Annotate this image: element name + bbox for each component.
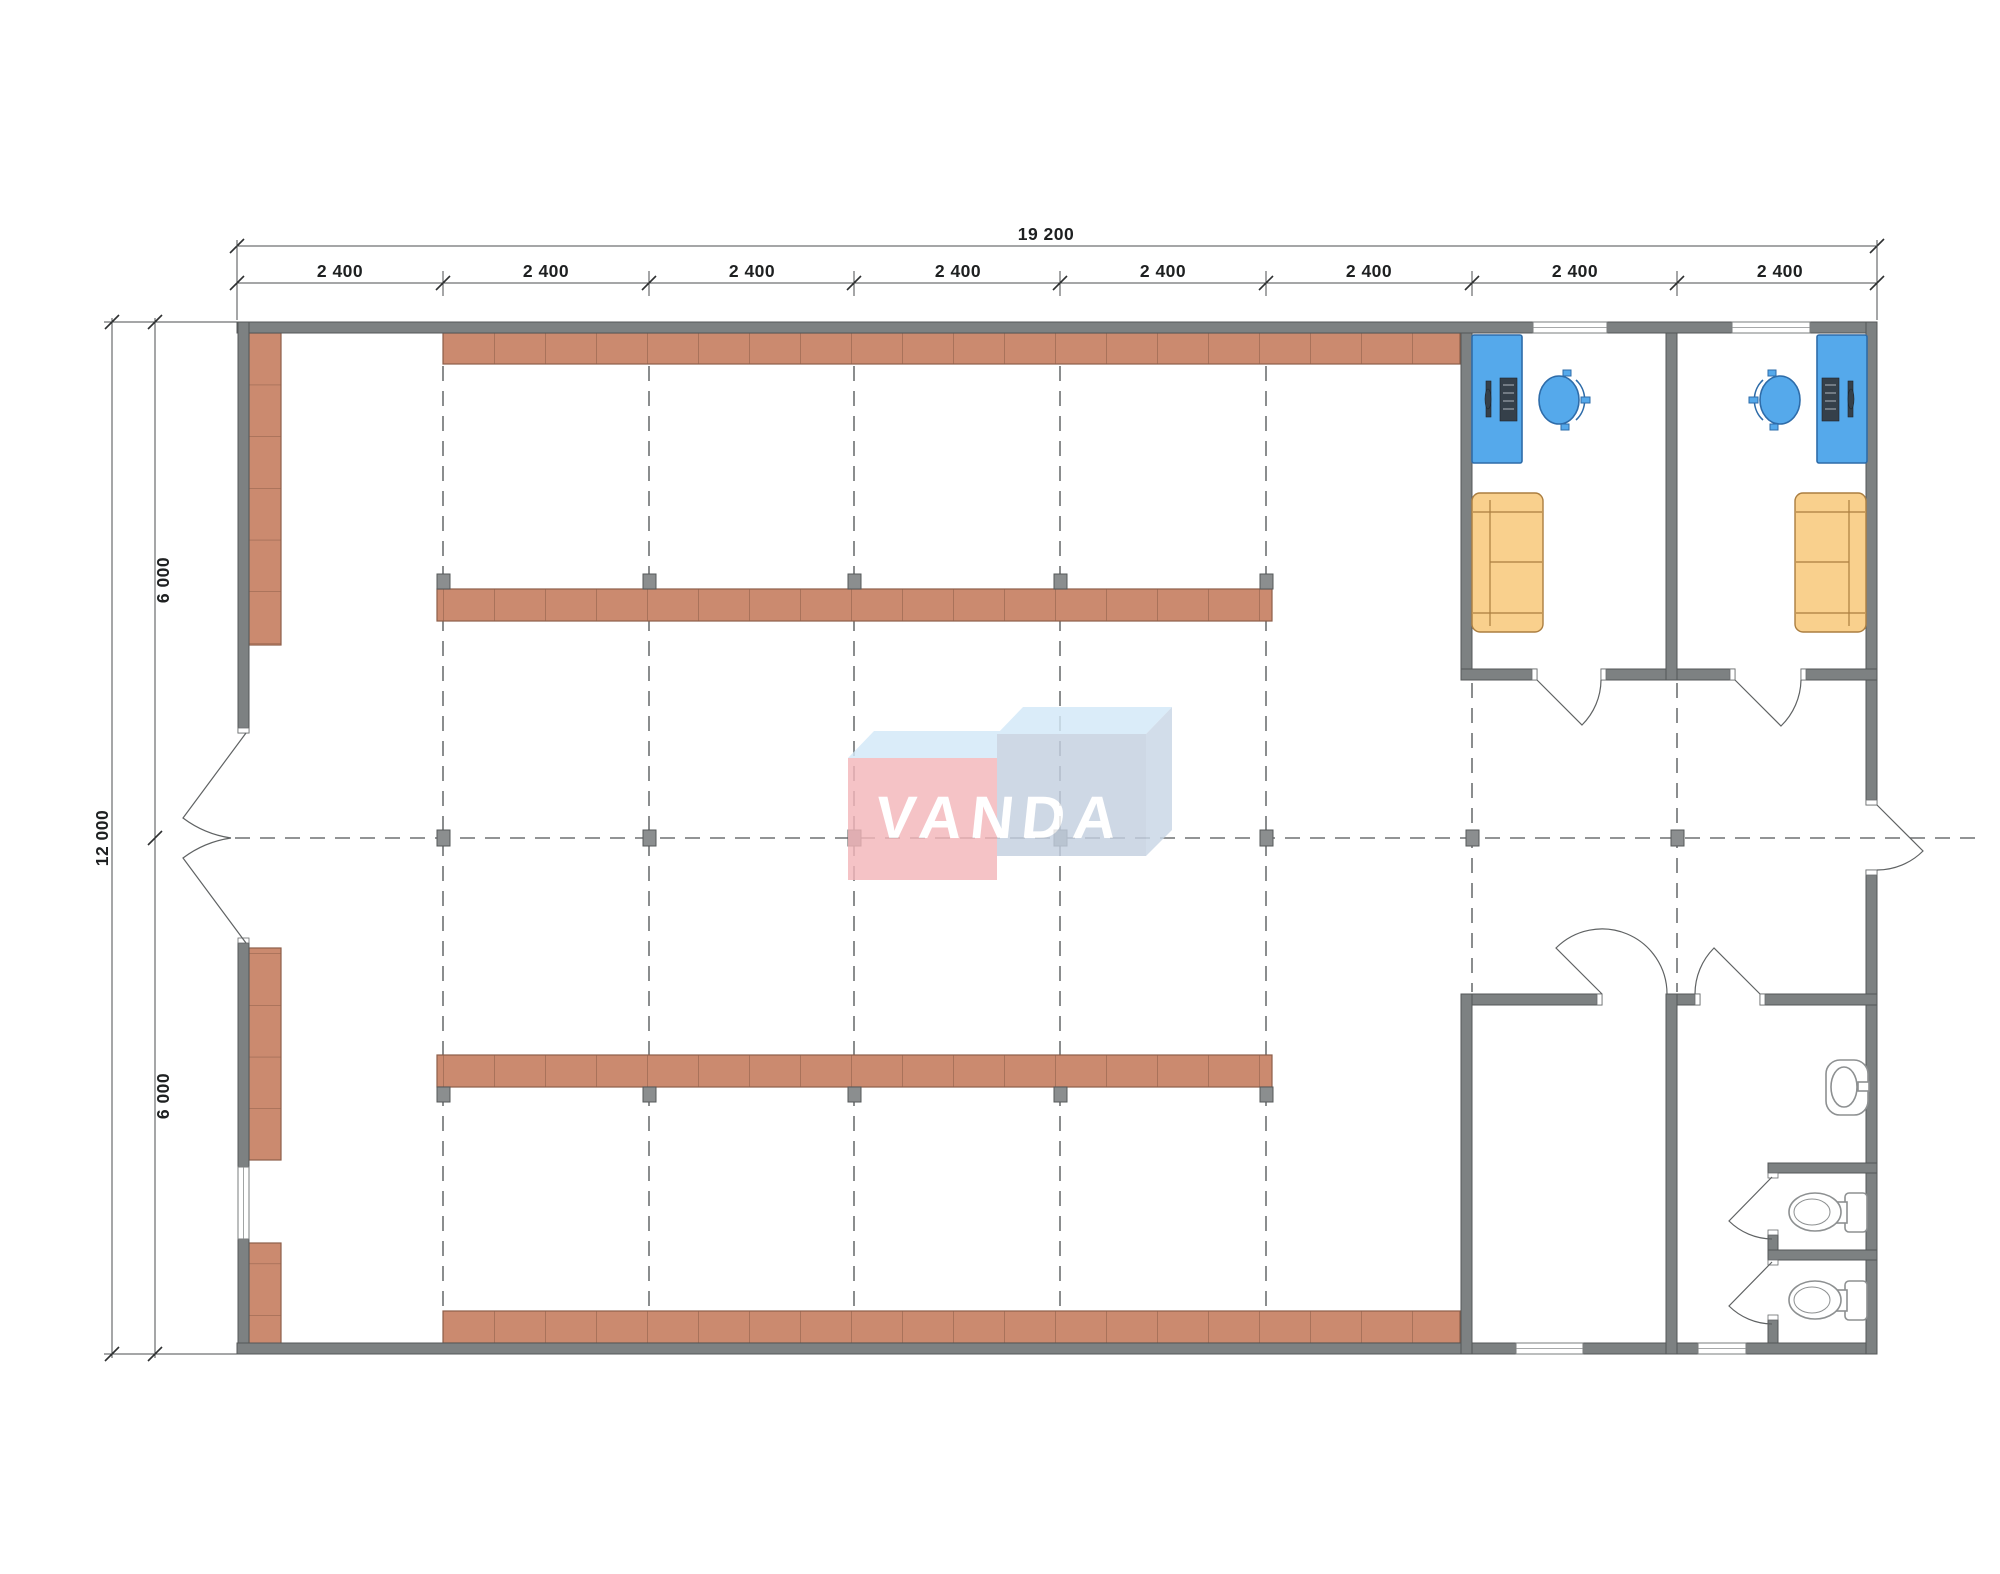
window-left-wall (238, 1167, 249, 1239)
dim-total-width: 19 200 (1018, 224, 1075, 244)
dim-bay-2: 2 400 (523, 261, 569, 281)
wall-left-upper (238, 322, 249, 733)
office-chair-icon (1539, 370, 1590, 430)
wall-bath-north-right (1760, 994, 1877, 1005)
dim-bay-ticks (230, 240, 1884, 320)
dim-bay-3: 2 400 (729, 261, 775, 281)
toilet-icon (1789, 1193, 1867, 1232)
wall-stall-stub-1 (1768, 1235, 1778, 1250)
window-bottom-right (1698, 1343, 1746, 1354)
logo-text: VANDA (872, 784, 1128, 851)
window-bottom-left (1516, 1343, 1583, 1354)
dim-bay-6: 2 400 (1346, 261, 1392, 281)
computer-icon (1822, 378, 1854, 421)
wall-bath-divider (1666, 994, 1677, 1354)
dim-upper-half: 6 000 (153, 557, 173, 603)
dim-bay-4: 2 400 (935, 261, 981, 281)
office-b-furniture (1749, 335, 1867, 632)
wall-office-b-south-right (1801, 669, 1877, 680)
bath-door-2-swing-icon (1695, 948, 1760, 994)
wall-office-a-south-left (1461, 669, 1537, 680)
window-office-a (1533, 322, 1607, 333)
toilet-icon (1789, 1281, 1867, 1320)
logo-left-box-top (848, 731, 1023, 758)
dim-total-height: 12 000 (92, 810, 112, 867)
office-a-door-swing-icon (1537, 680, 1601, 725)
vanda-logo-watermark: VANDA (848, 707, 1172, 880)
wall-top (237, 322, 1877, 333)
office-a-furniture (1472, 335, 1590, 632)
dim-bay-8: 2 400 (1757, 261, 1803, 281)
bath-door-1-swing-icon (1556, 929, 1667, 994)
stall-door-1-swing-icon (1729, 1177, 1772, 1239)
sink-icon (1826, 1060, 1869, 1115)
dim-bay-5: 2 400 (1140, 261, 1186, 281)
computer-icon (1485, 378, 1517, 421)
office-b-door-swing-icon (1735, 680, 1801, 726)
dim-bay-7: 2 400 (1552, 261, 1598, 281)
bathroom-fixtures (1789, 1060, 1869, 1320)
dim-lower-half: 6 000 (153, 1073, 173, 1119)
wall-office-left (1461, 333, 1472, 680)
sofa-icon (1795, 493, 1866, 632)
stall-door-2-swing-icon (1729, 1262, 1772, 1324)
wall-left-lower (238, 943, 249, 1354)
wall-office-b-south-left (1677, 669, 1735, 680)
office-chair-icon (1749, 370, 1800, 430)
wall-stall-1 (1768, 1163, 1877, 1173)
wall-office-a-south-right (1601, 669, 1666, 680)
sofa-icon (1472, 493, 1543, 632)
logo-right-box-top (997, 707, 1172, 734)
wall-bath-left (1461, 994, 1472, 1354)
wall-stall-2 (1768, 1250, 1877, 1260)
dim-bay-1: 2 400 (317, 261, 363, 281)
wall-bottom (237, 1343, 1877, 1354)
wall-bath-north-left (1472, 994, 1602, 1005)
window-office-b (1732, 322, 1810, 333)
wall-office-middle (1666, 333, 1677, 680)
floor-plan-canvas: 19 200 2 400 2 400 2 400 2 400 2 4 (0, 0, 2000, 1574)
wall-right-lower (1866, 870, 1877, 1354)
